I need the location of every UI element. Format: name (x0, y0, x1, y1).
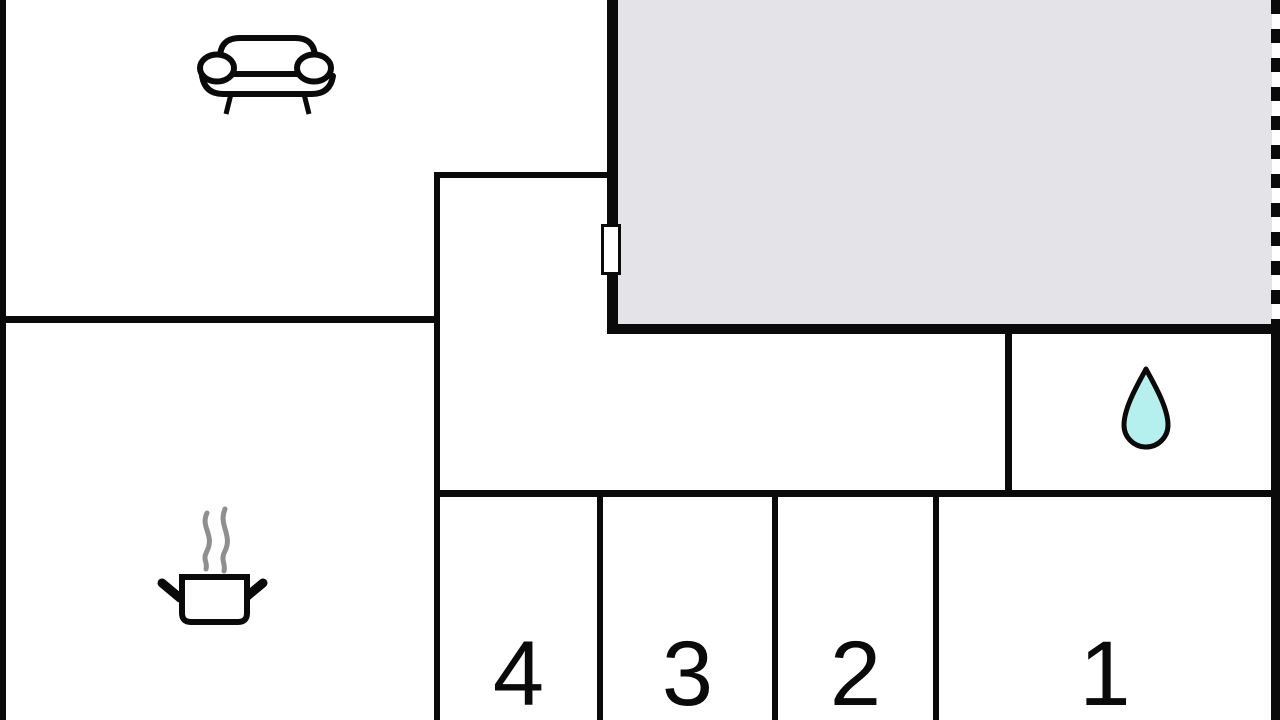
wall-bathroom-left (1005, 334, 1012, 494)
room-2-label: 2 (778, 628, 933, 720)
sofa-icon (195, 28, 340, 120)
wall-right-border (1271, 324, 1280, 720)
wall-hall-top (434, 172, 608, 178)
water-drop-icon (1119, 365, 1173, 455)
room-1-label: 1 (939, 628, 1271, 720)
wall-left-border (0, 0, 6, 720)
cooking-pot-icon (150, 503, 275, 625)
wall-hall-bottom (437, 490, 1280, 497)
wall-terrace-left (607, 0, 618, 334)
room-3-label: 3 (603, 628, 772, 720)
terrace-boundary-dashed-line (1271, 0, 1280, 324)
wall-living-bottom (0, 316, 440, 323)
room-4-label: 4 (440, 628, 597, 720)
floor-plan: 4 3 2 1 (0, 0, 1280, 720)
wall-terrace-bottom (607, 324, 1280, 334)
terrace-area (618, 0, 1272, 324)
door-marker (601, 224, 621, 275)
